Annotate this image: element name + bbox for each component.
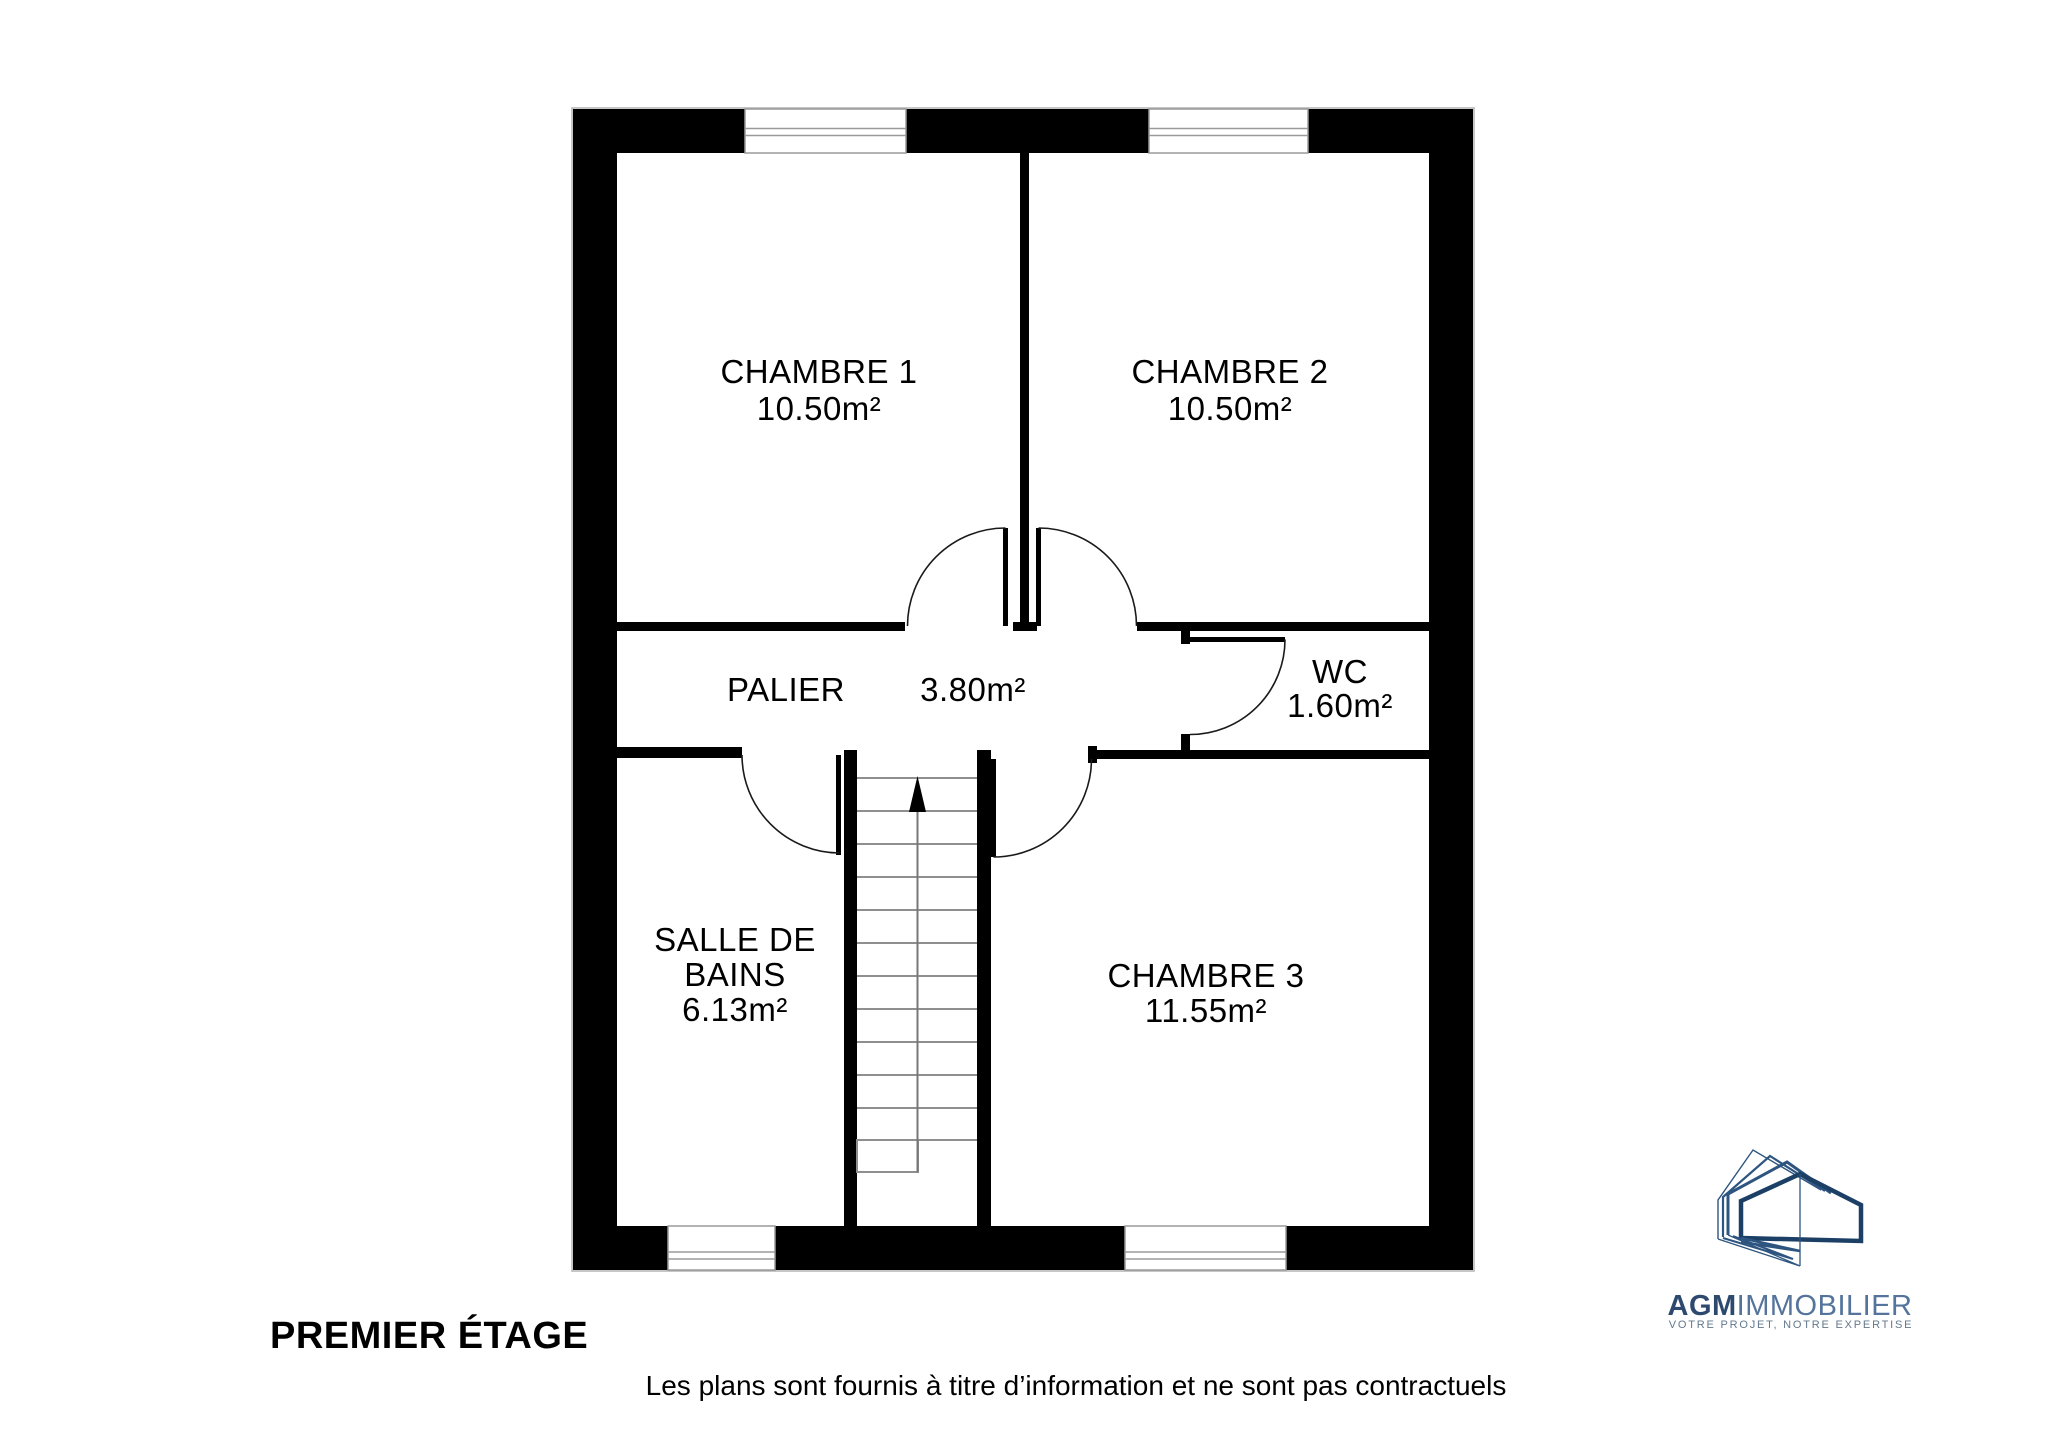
wall-right (1429, 109, 1473, 1270)
room-label-salle-de-bains: SALLE DE BAINS 6.13m² (654, 922, 816, 1027)
stair-up-arrow-icon (909, 776, 926, 812)
door-leaf-chambre-2 (1036, 528, 1041, 626)
wall-wc-jamb-top (1181, 631, 1190, 644)
room-name: CHAMBRE 2 (1131, 353, 1328, 390)
logo-tagline: VOTRE PROJET, NOTRE EXPERTISE (1669, 1319, 1914, 1331)
room-label-chambre-3: CHAMBRE 3 11.55m² (1107, 958, 1304, 1028)
window-top-right (1149, 109, 1308, 153)
wall-palier-north-right (1137, 622, 1429, 631)
room-area: 3.80m² (920, 671, 1026, 708)
floor-title: PREMIER ÉTAGE (270, 1315, 588, 1358)
wall-divider-foot (1013, 622, 1037, 631)
logo-brand-bold: AGM (1668, 1290, 1737, 1322)
wall-stairs-left (844, 750, 857, 1226)
wall-sdb-north (617, 747, 742, 758)
disclaimer-text: Les plans sont fournis à titre d’informa… (646, 1370, 1507, 1402)
room-label-chambre-2: CHAMBRE 2 10.50m² (1131, 353, 1328, 427)
door-arc-chambre-2 (1039, 528, 1137, 626)
room-label-chambre-1: CHAMBRE 1 10.50m² (720, 353, 917, 427)
room-area: 10.50m² (1131, 390, 1328, 427)
wall-top (573, 109, 745, 153)
room-name: CHAMBRE 1 (720, 353, 917, 390)
room-name: SALLE DE (654, 922, 816, 957)
door-leaf-salle-de-bains (836, 755, 841, 855)
window-bottom-right (1125, 1226, 1286, 1270)
wall-bottom (1286, 1226, 1473, 1270)
door-leaf-chambre-3 (991, 759, 996, 857)
wall-bottom (573, 1226, 668, 1270)
door-leaf-wc (1190, 637, 1285, 642)
wall-bottom (775, 1226, 1125, 1270)
room-area: 6.13m² (654, 992, 816, 1027)
room-name: PALIER (727, 671, 845, 708)
wall-chambre3-door-jamb (1088, 746, 1097, 763)
room-area: 1.60m² (1287, 689, 1393, 723)
room-area-palier: 3.80m² (920, 671, 1026, 708)
wall-chambre3-north (1090, 750, 1429, 759)
room-area: 10.50m² (720, 390, 917, 427)
window-top-left (745, 109, 906, 153)
logo-brand-light: IMMOBILIER (1737, 1290, 1913, 1322)
wall-stairs-right (977, 750, 991, 1226)
stair-bottom-landing (857, 1140, 918, 1172)
room-name: WC (1287, 655, 1393, 689)
room-label-wc: WC 1.60m² (1287, 655, 1393, 723)
door-leaf-chambre-1 (1003, 528, 1008, 626)
floor-plan-page: CHAMBRE 1 10.50m² CHAMBRE 2 10.50m² PALI… (0, 0, 2048, 1447)
wall-palier-north-left (617, 622, 905, 631)
room-name: CHAMBRE 3 (1107, 958, 1304, 993)
wall-top (906, 109, 1149, 153)
room-area: 11.55m² (1107, 993, 1304, 1028)
door-arc-chambre-3 (994, 759, 1092, 857)
door-arc-wc (1190, 640, 1285, 735)
door-arc-chambre-1 (908, 528, 1006, 626)
door-arc-salle-de-bains (742, 755, 840, 853)
room-name: BAINS (654, 957, 816, 992)
door-leaves (836, 528, 1285, 857)
stairs (857, 776, 977, 1172)
wall-top (1308, 109, 1473, 153)
wall-left (573, 109, 617, 1270)
room-label-palier: PALIER (727, 671, 845, 708)
logo-house-icon (1703, 1138, 1878, 1278)
wall-wc-jamb-bottom (1181, 734, 1190, 751)
window-bottom-left (668, 1226, 775, 1270)
wall-chambre1-chambre2 (1020, 153, 1029, 622)
